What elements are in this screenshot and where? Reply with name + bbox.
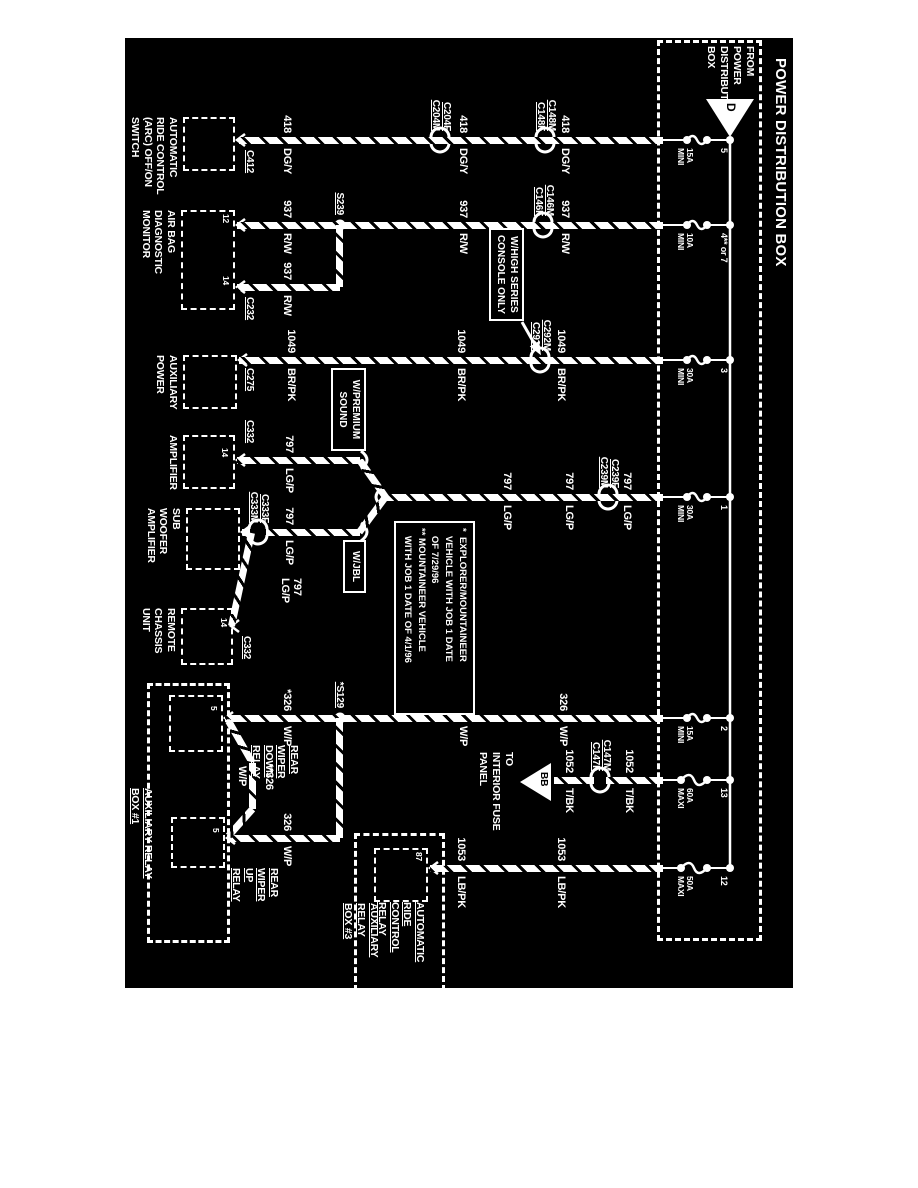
variant-note-line: ** MOUNTAINEER VEHICLE xyxy=(414,528,428,708)
from-power-distribution-label: FROM xyxy=(743,46,756,76)
fuse-rating: MINI xyxy=(677,233,686,250)
component-name: REMOTE xyxy=(165,608,178,652)
splice-label: S239 xyxy=(334,145,345,215)
group-box-label: BOX #1 xyxy=(129,788,142,824)
circuit-number: 1049 xyxy=(455,283,466,353)
fuse-rating: MAXI xyxy=(677,876,686,896)
circuit-number: 937 xyxy=(559,148,570,218)
wire-1053 xyxy=(430,865,663,872)
component-name: WIPER xyxy=(255,868,268,901)
triangle-bb-letter: BB xyxy=(538,772,549,786)
component-name: WIPER xyxy=(275,745,288,778)
fuse-number: 13 xyxy=(719,788,728,798)
circuit-number: 937 xyxy=(281,148,292,218)
fuse-rating: MINI xyxy=(677,368,686,385)
triangle-d-letter: D xyxy=(724,103,738,112)
pin-number: 14 xyxy=(222,276,231,285)
fuse-rating: 15A xyxy=(686,148,695,163)
component-box xyxy=(181,608,233,665)
fuse-number: 4** or 7 xyxy=(719,233,728,262)
wire-1052 xyxy=(554,777,594,784)
variant-note-box: * EXPLORER/MOUNTAINEER VEHICLE WITH JOB … xyxy=(394,521,475,715)
circuit-number: 1053 xyxy=(455,791,466,861)
component-name: DIAGNOSTIC xyxy=(152,210,165,274)
wire-color: R/W xyxy=(457,233,468,254)
to-interior-fuse-panel-label: INTERIOR FUSE xyxy=(489,752,502,831)
component-box xyxy=(183,355,237,409)
connector-arc-icon xyxy=(599,500,617,509)
circuit-number: 418 xyxy=(457,63,468,133)
wire-1052 xyxy=(606,777,663,784)
fuse-rating: MINI xyxy=(677,505,686,522)
fuse-rating: 50A xyxy=(686,876,695,891)
circuit-number: 797 xyxy=(501,420,512,490)
fuse-number: 1 xyxy=(719,505,728,510)
wire-color: W/P xyxy=(281,726,292,746)
callout-box: W/HIGH SERIESCONSOLE ONLY xyxy=(489,228,524,321)
component-name: AMPLIFIER xyxy=(145,508,158,563)
wire-color: T/BK xyxy=(623,788,634,813)
connector-arc-icon xyxy=(431,143,449,152)
fuse-rating: 10A xyxy=(686,233,695,248)
circuit-number: 326 xyxy=(557,641,568,711)
group-box-label: AUXILIARY RELAY xyxy=(142,788,155,879)
circuit-number: 937 xyxy=(457,148,468,218)
group-box-label: RELAY xyxy=(355,903,368,937)
circuit-number: 418 xyxy=(559,63,570,133)
inline-connector-label: C292F xyxy=(530,281,541,351)
end-connector-label: C275 xyxy=(244,368,255,391)
wire-label: LG/P xyxy=(279,578,290,603)
component-name: REAR xyxy=(268,868,281,897)
component-name: RELAY xyxy=(230,868,243,902)
fuse-rating: 60A xyxy=(686,788,695,803)
wire-418 xyxy=(239,137,663,144)
callout-text: W/JBL xyxy=(349,544,362,589)
inline-connector-label: C148F xyxy=(535,61,546,131)
wire-797 xyxy=(357,458,389,499)
to-interior-fuse-panel-label: PANEL xyxy=(476,752,489,786)
wire-937 xyxy=(237,222,663,229)
component-name: MONITOR xyxy=(140,210,153,258)
wire-color: BR/PK xyxy=(455,368,466,401)
wire-color: W/P xyxy=(457,726,468,746)
component-box xyxy=(181,210,235,310)
power-distribution-box-outline xyxy=(657,40,762,941)
component-name: RIDE CONTROL xyxy=(154,117,167,195)
inline-connector-label: C239M xyxy=(598,418,609,488)
component-name: UP xyxy=(243,868,256,882)
from-power-distribution-label: BOX xyxy=(704,46,717,68)
fuse-number: 5 xyxy=(719,148,728,153)
component-name: AMPLIFIER xyxy=(167,435,180,490)
variant-note-line: OF 7/29/96 xyxy=(428,528,442,708)
inline-connector-label: C204F xyxy=(441,61,452,131)
callout-box: W/JBL xyxy=(344,540,367,593)
circuit-number: 1049 xyxy=(555,283,566,353)
circuit-number: 1053 xyxy=(555,791,566,861)
inline-connector-label: C239F xyxy=(609,418,620,488)
component-box xyxy=(186,508,240,570)
variant-note-line: WITH JOB 1 DATE OF 4/1/96 xyxy=(400,528,414,708)
fuse-rating: 30A xyxy=(686,368,695,383)
wire-797 xyxy=(384,494,663,501)
wire-color: BR/PK xyxy=(555,368,566,401)
component-name: REAR xyxy=(288,745,301,774)
circuit-number: 797 xyxy=(283,383,294,453)
inline-connector-label: C148M xyxy=(546,61,557,131)
wire-797 xyxy=(266,529,360,536)
circuit-number: 797 xyxy=(563,420,574,490)
component-box xyxy=(183,117,235,171)
pin-number: 12 xyxy=(222,214,231,223)
wire-326 xyxy=(227,835,340,842)
fuse-rating: 15A xyxy=(686,726,695,741)
fuse-rating: 30A xyxy=(686,505,695,520)
fuse-rating: MAXI xyxy=(677,788,686,808)
component-name: POWER xyxy=(154,355,167,394)
circuit-number: 418 xyxy=(281,63,292,133)
inline-connector-label: C333M xyxy=(248,453,259,523)
circuit-number: 797 xyxy=(283,455,294,525)
fuse-number: 3 xyxy=(719,368,728,373)
variant-note-line: * EXPLORER/MOUNTAINEER xyxy=(455,528,469,708)
callout-text: CONSOLE ONLY xyxy=(494,232,507,317)
end-connector-label: C332 xyxy=(241,636,252,659)
component-name: RELAY xyxy=(250,745,263,779)
wire-797 xyxy=(357,495,389,534)
splice-label: *S129 xyxy=(334,638,345,708)
group-box-label: AUXILIARY xyxy=(368,903,381,957)
circuit-number: 937 xyxy=(281,210,292,280)
scanned-wiring-diagram-page: POWER DISTRIBUTION BOXFROMPOWERDISTRIBUT… xyxy=(0,0,918,1188)
circuit-number: *326 xyxy=(281,641,292,711)
component-name: SWITCH xyxy=(129,117,142,157)
from-power-distribution-label: POWER xyxy=(730,46,743,85)
group-box-label: BOX #3 xyxy=(342,903,355,939)
callout-box: W/PREMIUMSOUND xyxy=(331,368,366,451)
wire-color: W/P xyxy=(281,846,292,866)
circuit-number: 1052 xyxy=(563,703,574,773)
callout-text: W/HIGH SERIES xyxy=(507,232,520,317)
fuse-rating: MINI xyxy=(677,148,686,165)
inline-connector-label: C292M xyxy=(541,281,552,351)
group-box xyxy=(147,683,230,943)
end-connector-label: C412 xyxy=(244,150,255,173)
component-name: WOOFER xyxy=(157,508,170,554)
component-name: SUB xyxy=(170,508,183,530)
to-interior-fuse-panel-label: TO xyxy=(502,752,515,766)
circuit-number: 1052 xyxy=(623,703,634,773)
callout-text: W/PREMIUM xyxy=(349,372,362,447)
inline-connector-label: C146F xyxy=(533,146,544,216)
wire-color: LG/P xyxy=(563,505,574,530)
pin-number: 14 xyxy=(220,618,229,627)
wire-326 xyxy=(337,718,344,838)
diagram-stage: POWER DISTRIBUTION BOXFROMPOWERDISTRIBUT… xyxy=(0,0,918,1188)
fuse-rating: MINI xyxy=(677,726,686,743)
wire-color: LG/P xyxy=(621,505,632,530)
connector-arc-icon xyxy=(531,363,549,372)
component-name: UNIT xyxy=(140,608,153,632)
wire-color: R/W xyxy=(559,233,570,254)
power-distribution-box-title: POWER DISTRIBUTION BOX xyxy=(773,58,788,267)
component-name: AUTOMATIC xyxy=(167,117,180,177)
component-name: (ARC) OFF/ON xyxy=(142,117,155,187)
variant-note-line: VEHICLE WITH JOB 1 DATE xyxy=(441,528,455,708)
wire-1049 xyxy=(239,357,663,364)
wire-label: W/P xyxy=(236,766,247,786)
wire-color: LB/PK xyxy=(555,876,566,908)
end-connector-label: C232 xyxy=(244,297,255,320)
fuse-number: 12 xyxy=(719,876,728,886)
inline-connector-label: C147F xyxy=(590,701,601,771)
circuit-number: 1049 xyxy=(285,283,296,353)
component-name: AIR BAG xyxy=(165,210,178,253)
wire-color: LB/PK xyxy=(455,876,466,908)
diagram-canvas: POWER DISTRIBUTION BOXFROMPOWERDISTRIBUT… xyxy=(125,38,793,988)
callout-text: SOUND xyxy=(336,372,349,447)
component-box xyxy=(183,435,235,489)
fuse-number: 2 xyxy=(719,726,728,731)
component-name: CHASSIS xyxy=(152,608,165,653)
end-connector-label: C332 xyxy=(244,420,255,443)
component-name: DOWN xyxy=(263,745,276,777)
connector-arc-icon xyxy=(591,783,609,792)
wire-color: LG/P xyxy=(283,540,294,565)
wire-937 xyxy=(337,225,344,287)
wire-color: LG/P xyxy=(501,505,512,530)
connector-arc-icon xyxy=(534,228,552,237)
inline-connector-label: C147M xyxy=(601,701,612,771)
pin-number: 14 xyxy=(221,448,230,457)
inline-connector-label: C333F xyxy=(259,453,270,523)
inline-connector-label: C204M xyxy=(430,61,441,131)
circuit-number: 797 xyxy=(621,420,632,490)
component-name: AUXILIARY xyxy=(167,355,180,409)
wire-label: 797 xyxy=(291,578,302,596)
inline-connector-label: C146M xyxy=(544,146,555,216)
